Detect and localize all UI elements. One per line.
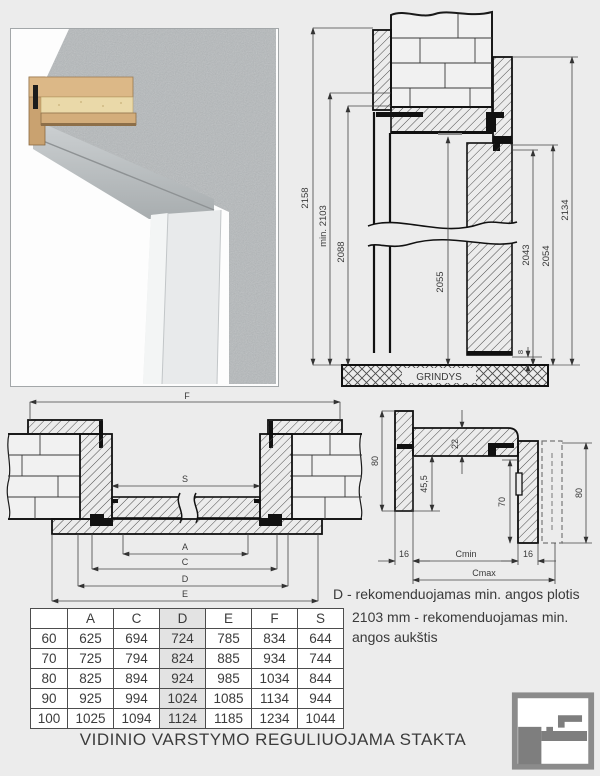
table-cell: 90 [31,689,68,709]
dimension-labels: 2158 min. 2103 2088 2055 2043 2054 2134 … [300,187,571,354]
wall-section [391,12,492,107]
table-row: 70725794824885934744 [31,649,344,669]
table-cell: 825 [68,669,114,689]
top-casing-right [268,420,342,434]
jamb-left [80,434,112,519]
brand-logo [511,692,595,770]
table-cell: 844 [298,669,344,689]
dim-label: 2088 [336,241,347,262]
table-cell: 1185 [206,709,252,729]
table-cell: 1234 [252,709,298,729]
table-cell: 944 [298,689,344,709]
dim-label: 16 [523,549,533,559]
dim-label: 22 [450,439,460,449]
table-header-cell: C [114,609,160,629]
table-cell: 934 [252,649,298,669]
corner-detail-drawing: 80 22 45,5 70 80 16 Cmin 16 Cmax [370,398,600,590]
dim-label: 2054 [541,245,552,266]
table-header-cell: A [68,609,114,629]
frame-board [413,428,518,456]
table-header-cell: S [298,609,344,629]
dim-label: 2043 [521,244,532,265]
table-cell: 1024 [160,689,206,709]
size-table-head: ACDEFS [31,609,344,629]
door-bottom-edge [467,351,512,355]
page: GRINDYS 2158 min. 2103 2088 2055 2043 [0,0,600,776]
dim-label: S [182,474,188,484]
table-cell: 794 [114,649,160,669]
table-header-cell: F [252,609,298,629]
floor-label: GRINDYS [416,372,462,383]
page-title: VIDINIO VARSTYMO REGULIUOJAMA STAKTA [0,730,546,750]
dim-label: 80 [370,456,380,466]
table-row: 808258949249851034844 [31,669,344,689]
left-casing [373,30,391,110]
table-cell: 1044 [298,709,344,729]
table-cell: 694 [114,629,160,649]
table-cell: 1094 [114,709,160,729]
table-cell: 1034 [252,669,298,689]
dim-label: Cmax [472,568,496,578]
vertical-section-drawing: GRINDYS 2158 min. 2103 2088 2055 2043 [290,0,600,400]
table-cell: 994 [114,689,160,709]
dim-label: 2158 [300,187,311,208]
size-table-body: 6062569472478583464470725794824885934744… [31,629,344,729]
note-min-opening-width: D - rekomenduojamas min. angos plotis [333,585,599,605]
table-cell: 785 [206,629,252,649]
table-row: 100102510941124118512341044 [31,709,344,729]
door-seal-right [254,499,260,503]
dim-label: 2134 [560,199,571,220]
gasket-left [397,444,413,449]
frame-corner-photo [10,28,279,387]
table-header-cell [31,609,68,629]
dim-label: 8 [516,350,525,354]
table-cell: 985 [206,669,252,689]
table-cell: 625 [68,629,114,649]
top-casing-left [28,420,102,434]
note-min-opening-height: 2103 mm - rekomenduojamas min. angos auk… [352,608,600,647]
door-leaf-section [467,143,512,355]
table-cell: 834 [252,629,298,649]
horizontal-section-drawing: F S A C D E [0,388,372,610]
dim-label: D [182,574,189,584]
table-cell: 894 [114,669,160,689]
table-header-cell: E [206,609,252,629]
table-header-cell: D [160,609,206,629]
seal-left [376,112,423,117]
table-cell: 644 [298,629,344,649]
dim-label: min. 2103 [318,205,329,247]
dim-label: Cmin [455,549,476,559]
table-cell: 1124 [160,709,206,729]
dim-label: 16 [399,549,409,559]
table-cell: 70 [31,649,68,669]
door-seal-left [112,499,118,503]
table-cell: 1085 [206,689,252,709]
table-cell: 724 [160,629,206,649]
casing-profile [395,411,413,511]
frame-corner-photo-art [11,29,276,384]
dim-label: 80 [574,488,584,498]
dim-label: A [182,542,188,552]
table-cell: 824 [160,649,206,669]
wall-left [7,434,80,519]
table-cell: 1025 [68,709,114,729]
dim-label: E [182,589,188,599]
jamb-notch [516,473,522,495]
table-cell: 100 [31,709,68,729]
dim-label: F [184,391,190,401]
dim-label: 70 [497,497,507,507]
dim-label: 2055 [435,271,446,292]
table-cell: 925 [68,689,114,709]
dim-label: C [182,557,189,567]
jamb-right [260,434,292,519]
wall-right [290,434,362,519]
table-cell: 80 [31,669,68,689]
break-band [368,222,517,246]
table-row: 60625694724785834644 [31,629,344,649]
table-cell: 60 [31,629,68,649]
table-cell: 885 [206,649,252,669]
table-cell: 725 [68,649,114,669]
table-row: 90925994102410851134944 [31,689,344,709]
table-cell: 924 [160,669,206,689]
dim-label: 45,5 [419,475,429,493]
frame-header [391,107,492,133]
table-cell: 1134 [252,689,298,709]
table-cell: 744 [298,649,344,669]
size-table: ACDEFS 606256947247858346447072579482488… [30,608,344,729]
